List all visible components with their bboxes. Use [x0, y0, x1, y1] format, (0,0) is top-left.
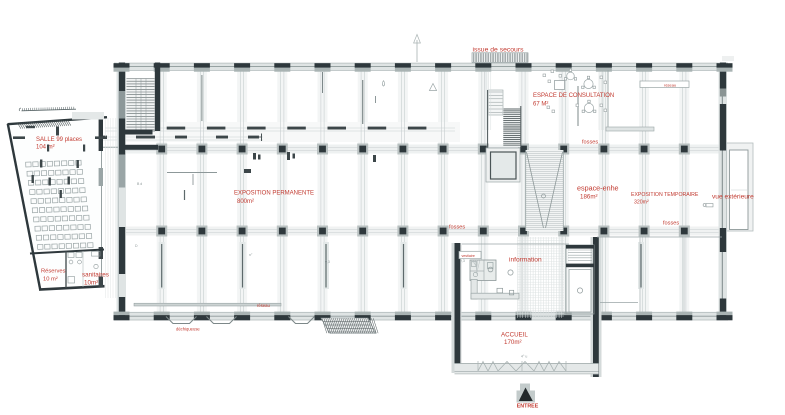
- svg-text:fosses: fosses: [582, 140, 598, 146]
- svg-text:0,3: 0,3: [325, 260, 330, 264]
- svg-text:sanitaires: sanitaires: [82, 272, 109, 279]
- svg-text:espace-enhe: espace-enhe: [577, 184, 619, 193]
- svg-text:vestiaire: vestiaire: [462, 254, 475, 258]
- svg-text:issue de secours: issue de secours: [473, 47, 525, 54]
- svg-text:B d: B d: [137, 182, 142, 186]
- svg-text:800m²: 800m²: [237, 199, 254, 205]
- svg-text:ACCUEIL: ACCUEIL: [501, 332, 528, 339]
- svg-text:réseau: réseau: [257, 303, 270, 308]
- svg-text:10 m²: 10 m²: [43, 276, 58, 282]
- svg-text:fosses: fosses: [449, 225, 465, 231]
- svg-text:Réserves: Réserves: [41, 269, 66, 275]
- svg-text:vue extérieure: vue extérieure: [712, 194, 754, 201]
- svg-text:EXPOSITION TEMPORAIRE: EXPOSITION TEMPORAIRE: [631, 192, 699, 198]
- svg-text:ESPACE DE CONSULTATION: ESPACE DE CONSULTATION: [533, 93, 614, 99]
- svg-text:320m²: 320m²: [634, 200, 649, 206]
- svg-text:10m²: 10m²: [84, 279, 98, 286]
- svg-text:réseau: réseau: [664, 82, 676, 87]
- svg-text:information: information: [509, 257, 542, 264]
- svg-text:déchiqueuse: déchiqueuse: [176, 327, 200, 332]
- svg-text:EXPOSITION PERMANENTE: EXPOSITION PERMANENTE: [234, 191, 314, 197]
- svg-text:186m²: 186m²: [580, 194, 598, 201]
- svg-text:104 m²: 104 m²: [36, 145, 55, 151]
- svg-text:fosses: fosses: [663, 221, 679, 227]
- svg-text:170m²: 170m²: [504, 339, 522, 346]
- svg-text:67 M²: 67 M²: [533, 102, 548, 108]
- svg-text:n°: n°: [249, 253, 253, 257]
- svg-text:SALLE 99 places: SALLE 99 places: [36, 137, 82, 143]
- svg-text:ENTREE: ENTREE: [517, 404, 539, 410]
- svg-text:4° u: 4° u: [521, 355, 527, 359]
